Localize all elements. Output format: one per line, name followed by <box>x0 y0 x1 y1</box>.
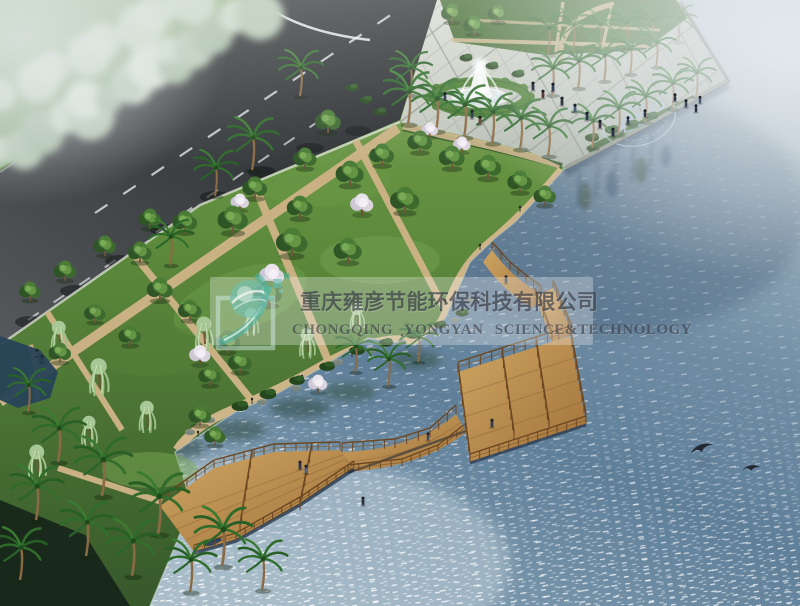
lamp-post <box>444 299 446 301</box>
landscape-rendering: 重庆雍彦节能环保科技有限公司 CHONGQING YONGYAN SCIENCE… <box>0 0 800 606</box>
rock <box>333 359 343 365</box>
rock <box>257 399 267 405</box>
lamp-post <box>401 334 403 336</box>
lamp-post <box>519 206 521 208</box>
scene-canvas <box>0 0 800 606</box>
lamp-post <box>479 244 481 246</box>
lamp-post <box>197 431 199 433</box>
rock <box>466 298 474 303</box>
rock <box>451 318 459 323</box>
lamp-post <box>251 398 253 400</box>
rock <box>185 429 195 435</box>
rock <box>291 385 301 391</box>
